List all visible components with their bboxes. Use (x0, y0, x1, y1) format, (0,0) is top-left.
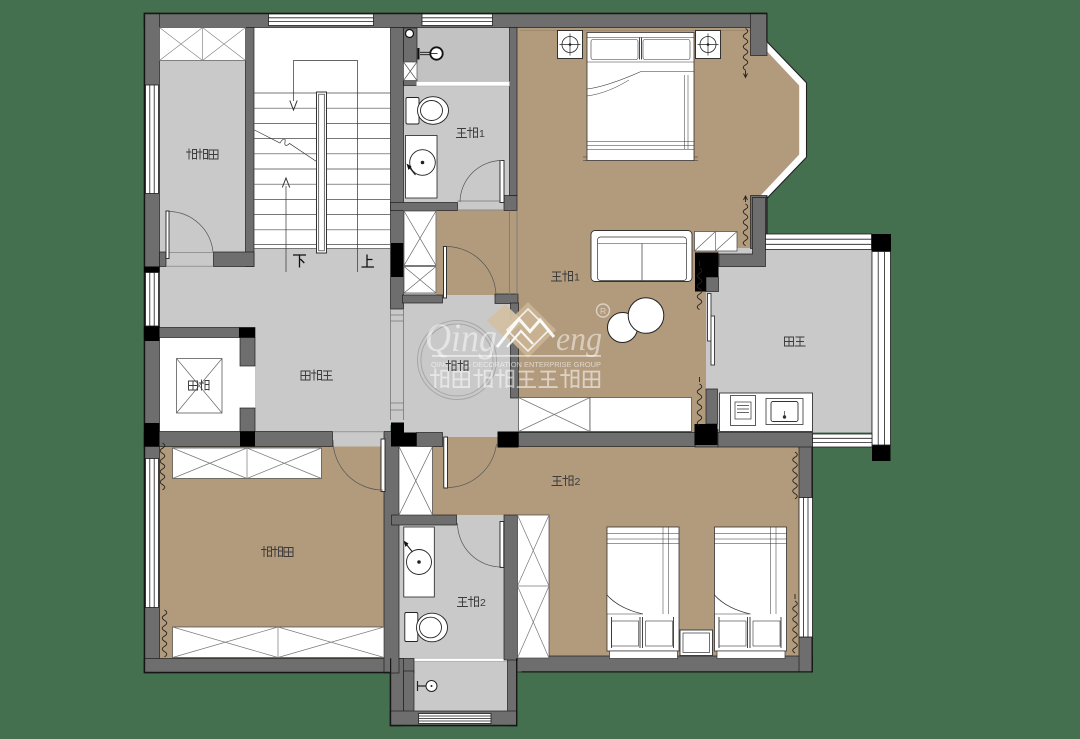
svg-text:QINGFENG DECORATION ENTERPRISE: QINGFENG DECORATION ENTERPRISE GROUP (431, 362, 601, 369)
svg-text:1: 1 (574, 272, 580, 284)
svg-text:Qing: Qing (425, 315, 497, 360)
svg-text:R: R (600, 306, 606, 316)
svg-text:2: 2 (575, 476, 581, 488)
svg-text:2: 2 (480, 597, 486, 609)
svg-text:1: 1 (479, 128, 485, 140)
svg-text:eng: eng (556, 321, 602, 358)
